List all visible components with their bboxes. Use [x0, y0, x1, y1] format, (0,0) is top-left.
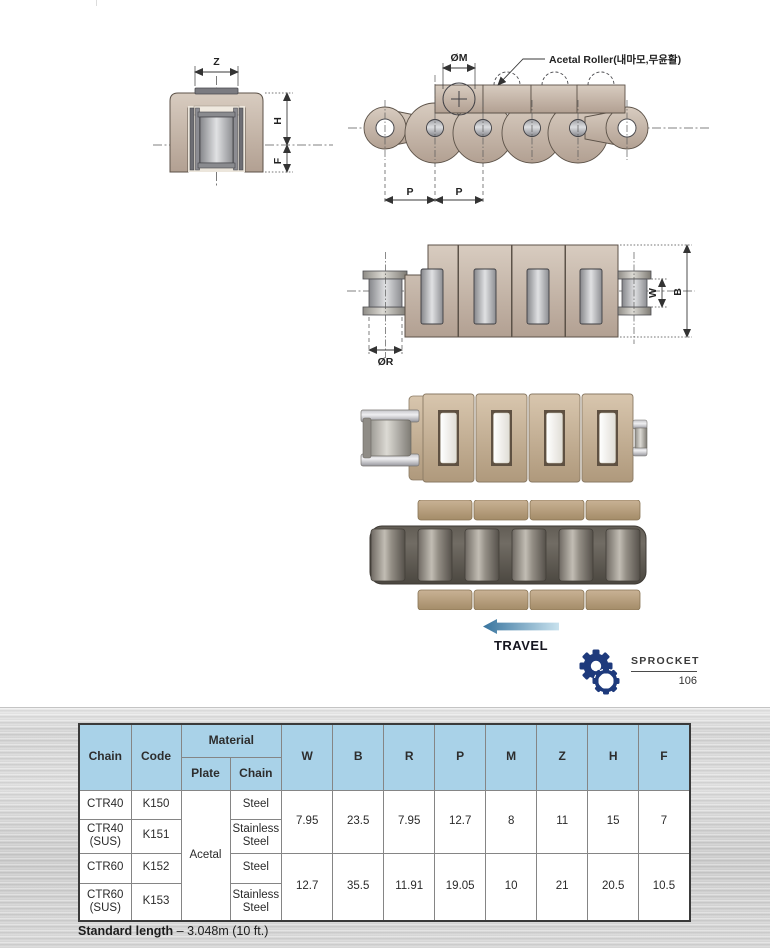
cell-z: 11: [537, 790, 588, 853]
cell-p: 12.7: [435, 790, 486, 853]
cell-p: 19.05: [435, 853, 486, 921]
cell-w: 12.7: [282, 853, 333, 921]
col-header-h: H: [588, 724, 639, 790]
dim-p: P P: [385, 163, 483, 205]
cell-r: 7.95: [384, 790, 435, 853]
cell-b: 23.5: [333, 790, 384, 853]
crop-mark: [96, 0, 97, 6]
standard-length-value: – 3.048m (10 ft.): [177, 924, 269, 938]
acetal-roller-note: Acetal Roller(내마모,무윤활): [498, 53, 681, 85]
table-row: CTR40 K150 Acetal Steel 7.95 23.5 7.95 1…: [79, 790, 690, 819]
col-header-chain-material: Chain: [230, 757, 282, 790]
sprocket-reference: SPROCKET 106: [577, 649, 697, 697]
cell-h: 15: [588, 790, 639, 853]
cell-chain-material: Stainless Steel: [230, 819, 282, 853]
table-row: CTR60 K152 Steel 12.7 35.5 11.91 19.05 1…: [79, 853, 690, 883]
col-header-f: F: [639, 724, 690, 790]
standard-length-label: Standard length: [78, 924, 173, 938]
cell-chain: CTR40 (SUS): [79, 819, 131, 853]
cell-m: 10: [486, 853, 537, 921]
dim-h: H: [265, 93, 293, 145]
top-roller-cap: [195, 88, 238, 94]
dim-label-p-right: P: [455, 186, 462, 198]
top-view-drawing: ØR W B: [345, 232, 710, 374]
col-header-r: R: [384, 724, 435, 790]
acetal-roller-note-label: Acetal Roller(내마모,무윤활): [549, 53, 681, 66]
cell-chain-material: Steel: [230, 853, 282, 883]
photo-bottom-caps: [418, 590, 640, 610]
travel-indicator: TRAVEL: [483, 619, 559, 653]
dim-label-b: B: [672, 288, 684, 296]
photo-chain-body: [370, 526, 646, 584]
cell-z: 21: [537, 853, 588, 921]
dim-label-p-left: P: [406, 186, 413, 198]
cell-h: 20.5: [588, 853, 639, 921]
chain-links: [364, 72, 648, 163]
spec-table: Chain Code Material W B R P M Z H F Plat…: [78, 723, 691, 922]
cell-chain-material: Stainless Steel: [230, 883, 282, 921]
cross-section-drawing: Z H F: [145, 48, 340, 213]
col-header-m: M: [486, 724, 537, 790]
cell-code: K150: [131, 790, 181, 819]
sprocket-label: SPROCKET: [631, 655, 697, 672]
col-header-p: P: [435, 724, 486, 790]
photo-plates: [423, 394, 633, 482]
photo-right-metal-link: [633, 420, 647, 456]
roller-section: [200, 117, 233, 163]
col-header-plate: Plate: [181, 757, 230, 790]
dim-label-m: ØM: [451, 52, 468, 64]
cell-code: K152: [131, 853, 181, 883]
spec-section-band: Chain Code Material W B R P M Z H F Plat…: [0, 707, 770, 948]
side-view-drawing: ØM Acetal Roller(내마모,무윤활) P P: [345, 45, 717, 220]
cell-r: 11.91: [384, 853, 435, 921]
travel-arrow-icon: [483, 619, 559, 634]
product-photo-top-view: [357, 390, 649, 486]
travel-label: TRAVEL: [483, 638, 559, 653]
photo-top-caps: [418, 500, 640, 520]
plates-top-view: [405, 245, 618, 337]
dim-label-h: H: [272, 117, 284, 125]
catalog-page: Z H F: [0, 0, 770, 948]
col-header-chain: Chain: [79, 724, 131, 790]
col-header-w: W: [282, 724, 333, 790]
dim-label-w: W: [647, 288, 659, 298]
cell-b: 35.5: [333, 853, 384, 921]
cell-m: 8: [486, 790, 537, 853]
cell-code: K153: [131, 883, 181, 921]
col-header-b: B: [333, 724, 384, 790]
cell-f: 10.5: [639, 853, 690, 921]
col-header-material: Material: [181, 724, 282, 757]
cell-chain: CTR60: [79, 853, 131, 883]
cell-w: 7.95: [282, 790, 333, 853]
dim-label-f: F: [272, 157, 284, 164]
cell-chain-material: Steel: [230, 790, 282, 819]
left-pin-assembly: [363, 271, 407, 315]
col-header-code: Code: [131, 724, 181, 790]
sprocket-page-number: 106: [631, 675, 697, 687]
cell-chain: CTR40: [79, 790, 131, 819]
dim-f: F: [265, 145, 293, 172]
sprocket-gear-icon: [577, 649, 623, 697]
standard-length-note: Standard length – 3.048m (10 ft.): [78, 924, 268, 938]
product-photo-side-view: [368, 500, 648, 610]
cell-f: 7: [639, 790, 690, 853]
cell-plate-material: Acetal: [181, 790, 230, 921]
col-header-z: Z: [537, 724, 588, 790]
cell-chain: CTR60 (SUS): [79, 883, 131, 921]
dim-label-z: Z: [213, 56, 220, 68]
cell-code: K151: [131, 819, 181, 853]
link-body-section: [170, 88, 263, 172]
dim-label-r: ØR: [378, 356, 394, 368]
dim-w: W: [647, 279, 667, 307]
